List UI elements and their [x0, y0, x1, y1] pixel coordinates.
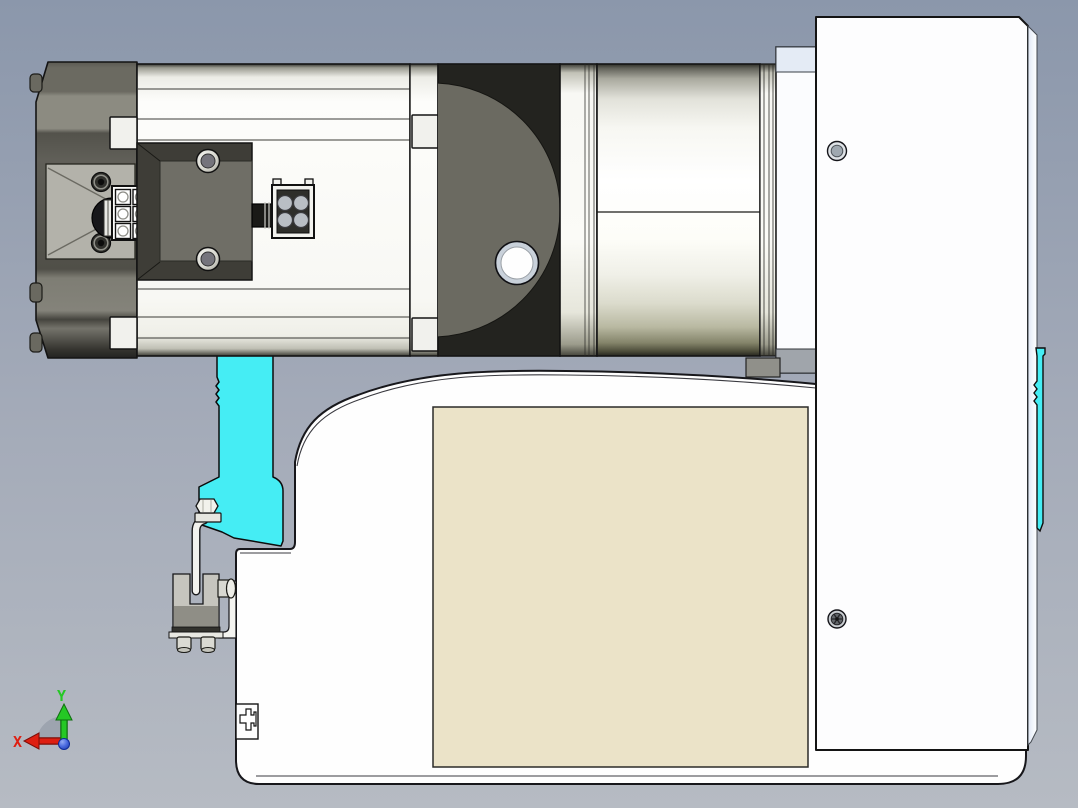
connector-4pin[interactable]: [272, 179, 314, 238]
flange-strip: [410, 64, 438, 356]
gearbox-hole[interactable]: [501, 247, 533, 279]
cylinder-tab-bottom-left: [110, 317, 137, 349]
side-panel[interactable]: [816, 17, 1028, 750]
motor-can[interactable]: [597, 64, 760, 356]
label-area[interactable]: [433, 407, 808, 767]
rear-cap-top-face: [776, 47, 816, 72]
y-axis-label: Y: [57, 687, 66, 705]
x-axis-label: X: [13, 733, 22, 751]
rear-cap[interactable]: [776, 47, 816, 373]
housing-edge-boss-bottom: [30, 333, 42, 352]
mount-boss-bottom: [197, 248, 220, 271]
side-panel-group: [816, 17, 1045, 750]
housing-edge-boss-top: [30, 74, 42, 92]
cad-scene: X Y: [0, 0, 1078, 808]
spacer-ring[interactable]: [560, 64, 597, 356]
flange-tab-bottom: [412, 318, 438, 351]
housing-edge-boss-mid: [30, 283, 42, 302]
terminal-screw-top[interactable]: [92, 173, 111, 192]
cad-viewport: X Y: [0, 0, 1078, 808]
bracket-hex-screw[interactable]: [196, 499, 218, 513]
panel-screw-bottom[interactable]: [828, 610, 846, 628]
sensor-fork-lower-shade: [174, 606, 218, 628]
flange-tab-top: [412, 115, 438, 148]
panel-screw-top[interactable]: [828, 142, 847, 161]
mount-spacer-block: [746, 358, 780, 377]
origin-ball: [59, 739, 70, 750]
sensor-pin-left-cap: [178, 648, 191, 653]
bracket-screw-washer: [195, 513, 221, 522]
motor-assembly: [30, 47, 816, 377]
rear-ring-band: [760, 64, 776, 356]
cylinder-tab-top-left: [110, 117, 137, 149]
rear-cap-bottom-band: [776, 349, 816, 373]
connector-mount-plate-face: [160, 161, 252, 261]
mount-boss-top: [197, 150, 220, 173]
sensor-side-cylinder-cap: [227, 579, 236, 598]
sensor-pin-right-cap: [202, 648, 215, 653]
